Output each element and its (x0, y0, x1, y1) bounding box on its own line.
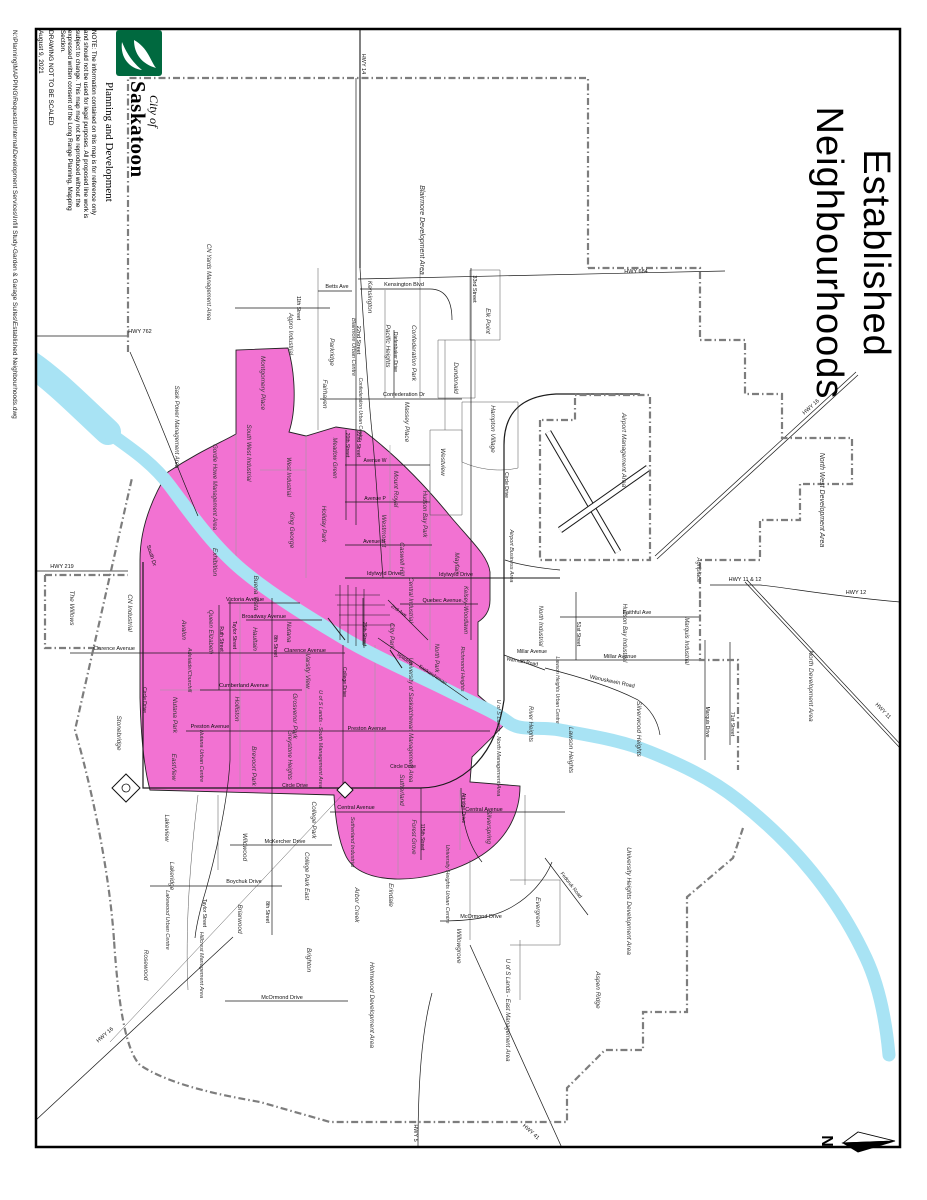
road-label: Idylwyld Drive (367, 571, 401, 577)
disclaimer-note: NOTE: The information contained on this … (58, 30, 97, 220)
road-label: McOrmond Drive (460, 914, 502, 920)
area-label: City Park (388, 623, 395, 650)
road-label: Wanuskewin Road (589, 674, 635, 689)
road-label: Circle Drive (503, 472, 509, 498)
road-label: Broadway Avenue (242, 614, 286, 620)
road-label: HWY 219 (50, 564, 73, 570)
area-label: Nutana (285, 622, 292, 643)
road-label: Marquis Drive (704, 707, 710, 738)
area-label: Westview (439, 448, 446, 477)
area-label: Hampton Village (489, 405, 496, 453)
road-label: Avenue H (363, 539, 385, 545)
area-label: University Heights Development Area (625, 847, 632, 955)
area-label: Pacific Heights (384, 325, 391, 369)
area-label: Blairmore Development Area (418, 185, 425, 275)
area-label: Buena Vista (252, 576, 259, 611)
road-label: Taylor Street (201, 899, 207, 928)
road-label: Quebec Avenue (422, 598, 461, 604)
title-block-legend: City of Saskatoon Planning and Developme… (38, 30, 162, 220)
road-label: Attridge Drive (460, 793, 466, 824)
road-label: HWY 5 (412, 1124, 418, 1141)
area-label: Kelsey-Woodlawn (462, 586, 468, 635)
area-label: University Heights Urban Centre (444, 845, 450, 924)
area-label: Sutherland Industrial (349, 817, 355, 868)
area-label: North West Development Area (818, 453, 825, 548)
area-label: Avalon (180, 619, 187, 640)
road-label: 25th Street (361, 622, 367, 647)
road-label: HWY 684 (624, 269, 647, 275)
area-label: Greystone Heights (286, 730, 292, 780)
file-path: N:\Planning\MAPPING\Requests\Internal\De… (5, 30, 18, 910)
road-label: 22nd Street (355, 326, 361, 355)
area-label: Lawson Heights (567, 727, 574, 774)
area-label: Varsity View (304, 653, 311, 690)
area-label: Sutherland (398, 774, 405, 806)
map-title: Established Neighbourhoods (797, 72, 899, 434)
map-title-line2: Neighbourhoods (805, 72, 852, 434)
road-label: Circle Drive (390, 764, 416, 770)
road-label: Preston Avenue (191, 724, 230, 730)
airport-runways (548, 432, 648, 552)
road-label: HWY 16 (96, 1026, 115, 1044)
road-label: Taylor Street (231, 621, 237, 650)
area-label: Briarwood (236, 904, 243, 934)
scale-warning: DRAWING NOT TO BE SCALED (47, 30, 54, 220)
road-label: 8th Street (272, 635, 278, 657)
area-label: The Willows (68, 591, 75, 627)
area-label: River Heights (527, 706, 533, 742)
area-label: Lakewood Urban Centre (164, 890, 170, 950)
road-label: HWY 11 (874, 702, 892, 721)
area-label: Adelaide/Churchill (186, 647, 192, 693)
area-label: Elk Point (484, 308, 491, 335)
road-label: McOrmond Drive (261, 995, 303, 1001)
road-label: Diefenbaker Drive (392, 332, 398, 372)
north-label: N (818, 1135, 835, 1147)
area-label: Parkridge (328, 338, 335, 366)
road-label: Ruth Street (218, 626, 224, 652)
area-label: Nutana Park (171, 697, 178, 734)
area-label: Exhibition (211, 548, 218, 577)
road-label: Avenue W (364, 458, 387, 464)
road-label: Clarence Avenue (93, 646, 135, 652)
area-label: Stonebridge (115, 715, 122, 750)
area-label: Holliston (233, 697, 240, 722)
road-label: Confederation Dr (383, 392, 425, 398)
area-label: Central Industrial (407, 577, 413, 623)
logo-brand-name: Saskatoon (127, 81, 148, 178)
road-label: Central Avenue (465, 807, 503, 813)
area-label: U of S Lands - South Management Area (317, 690, 323, 788)
north-arrow-icon: N (818, 1132, 895, 1152)
area-label: South West Industrial (245, 425, 251, 483)
road-label: 71st Street (729, 712, 735, 737)
area-label: Holmwood Development Area (368, 962, 375, 1048)
area-label: CN Industrial (126, 594, 133, 632)
road-label: Idylwyld Drive (439, 572, 473, 578)
area-label: College Park East (303, 852, 309, 900)
road-label: Circle Drive (141, 687, 147, 713)
area-label: Agriplace (695, 556, 701, 583)
area-label: North Industrial (537, 606, 543, 647)
area-label: Forest Grove (410, 819, 416, 855)
area-label: Brevoort Park (250, 746, 257, 786)
area-label: Rosewood (142, 950, 149, 981)
road-label: 33rd Street (471, 275, 477, 303)
area-label: Silverspring (485, 810, 492, 844)
area-label: Airport Management Area (620, 412, 627, 488)
road-label: 51st Street (575, 622, 581, 647)
road-label: Clarence Avenue (284, 648, 326, 654)
area-label: Airport Business Area (508, 529, 514, 583)
area-label: North Park (433, 644, 439, 674)
road-label: Millar Avenue (517, 649, 547, 655)
road-label: Fedoruk Road (559, 871, 583, 900)
area-label: Sask Power Management Area (173, 386, 179, 469)
area-label: Hillcrest Management Area (198, 932, 204, 998)
area-label: Holiday Park (320, 506, 327, 544)
area-label: College Park (310, 801, 317, 839)
area-label: Dundonald (452, 362, 459, 394)
area-label: King George (288, 512, 295, 549)
area-label: Montgomery Place (259, 356, 266, 411)
road-label: Boychuk Drive (226, 879, 261, 885)
area-label: West Industrial (285, 457, 291, 497)
road-label: Preston Avenue (348, 726, 387, 732)
road-label: Cumberland Avenue (219, 683, 269, 689)
area-label: Wildwood (241, 833, 248, 862)
road-label: HWY 11 & 12 (729, 577, 762, 583)
road-label: Circle Drive (282, 783, 308, 789)
area-label: Lakeridge (168, 862, 175, 891)
road-label: College Drive (341, 667, 347, 697)
road-label: McKercher Drive (265, 839, 306, 845)
road-label: 11th Street (295, 296, 301, 321)
road-label: 22nd Street (355, 431, 361, 457)
area-label: Silverwood Heights (635, 701, 642, 757)
area-label: Mount Royal (392, 471, 399, 508)
area-label: Lakeview (163, 814, 170, 842)
area-label: Willowgrove (455, 929, 462, 964)
road-label: Central Avenue (337, 805, 375, 811)
road-label: HWY 762 (128, 329, 151, 335)
map-title-line1: Established (852, 72, 899, 434)
area-label: Fairhaven (321, 380, 328, 409)
area-label: Nutana Urban Centre (198, 730, 204, 782)
road-label: HWY 41 (521, 1123, 540, 1141)
area-label: Marquis Industrial (683, 617, 689, 665)
area-label: Lawson Heights Urban Centre (554, 657, 560, 724)
area-label: Kensington (366, 281, 373, 314)
area-label: Brighton (305, 948, 312, 973)
road-label: Betts Ave (325, 284, 348, 290)
department-label: Planning and Development (103, 82, 115, 220)
road-label: Millar Avenue (604, 654, 637, 660)
area-label: Arbor Creek (353, 886, 360, 923)
road-label: 115th Street (419, 824, 425, 851)
area-label: Erindale (387, 883, 394, 907)
area-label: EastView (170, 754, 177, 782)
area-label: Hudson Bay Park (421, 491, 427, 539)
area-label: U of S Lands - North Management Area (495, 700, 501, 797)
area-label: Meadow Green (331, 437, 337, 479)
road-label: Faithful Ave (623, 610, 652, 616)
road-label: 20th Street (344, 433, 350, 458)
area-label: CN Yards Management Area (205, 244, 211, 321)
area-label: Evergreen (534, 897, 541, 927)
road-label: HWY 12 (846, 590, 866, 596)
city-of-saskatoon-logo-icon (116, 30, 162, 76)
road-label: 8th Street (264, 901, 270, 923)
map-page: CN Yards Management AreaBlairmore Develo… (0, 0, 927, 1200)
area-label: Queen Elizabeth (207, 610, 213, 655)
road-label: Kensington Blvd (384, 282, 424, 288)
area-label: Aspen Ridge (594, 970, 601, 1009)
road-label: Victoria Avenue (226, 597, 264, 603)
area-label: Richmond Heights (459, 647, 465, 692)
area-label: North Development Area (807, 650, 814, 722)
road-label: HWY 14 (360, 54, 366, 74)
area-label: Gordie Howe Management Area (211, 444, 217, 530)
area-label: Agpro Industrial (287, 312, 293, 356)
area-label: Haultain (251, 627, 258, 651)
road-label: Avenue P (364, 496, 386, 502)
area-label: U of S Lands - East Management Area (504, 959, 510, 1062)
area-label: Confederation Park (410, 325, 417, 382)
map-date: August 9, 2021 (37, 30, 44, 220)
road-label: Warman Road (506, 656, 539, 668)
area-label: Massey Place (403, 402, 410, 443)
